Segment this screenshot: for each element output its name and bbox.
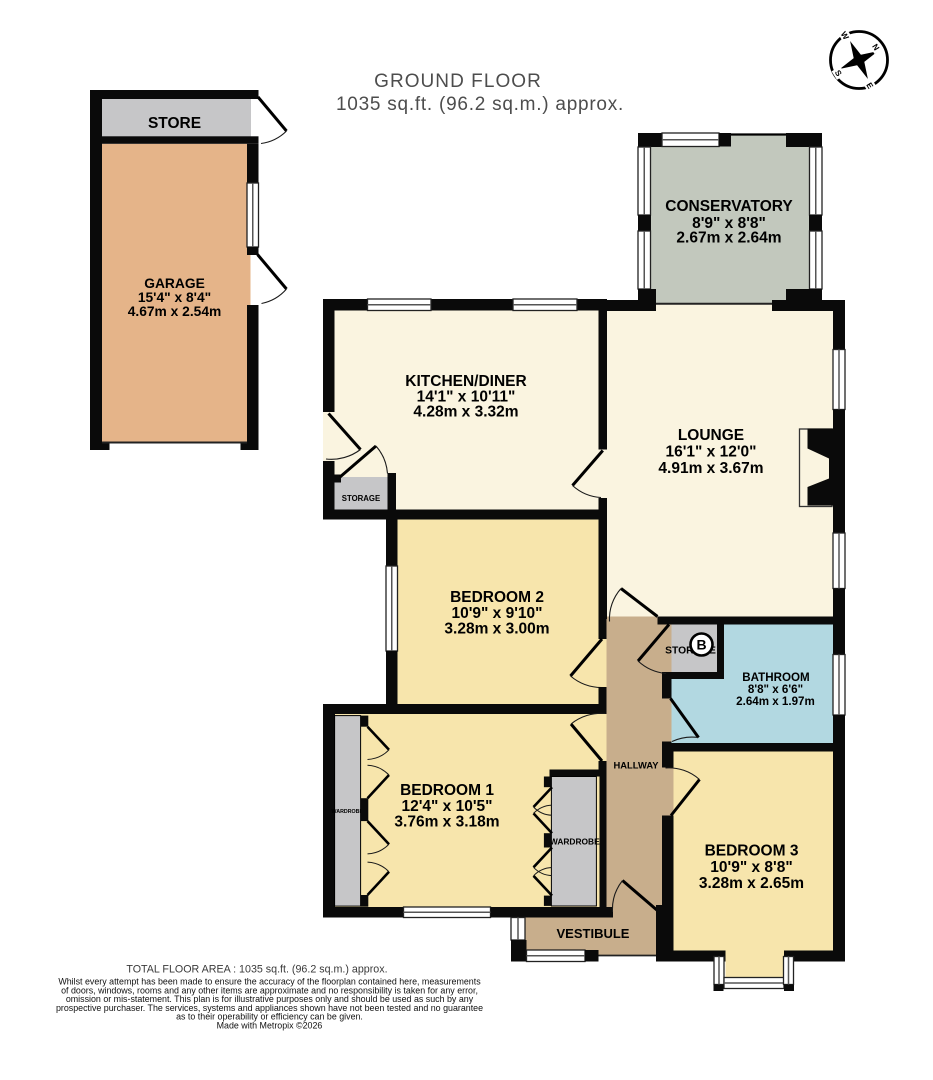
svg-text:TOTAL FLOOR AREA : 1035 sq.ft.: TOTAL FLOOR AREA : 1035 sq.ft. (96.2 sq.… [126,964,387,976]
svg-text:16'1" x 12'0": 16'1" x 12'0" [665,444,756,461]
svg-text:B: B [696,637,706,653]
svg-text:10'9" x 9'10": 10'9" x 9'10" [451,605,542,622]
svg-text:2.67m x 2.64m: 2.67m x 2.64m [676,230,781,247]
svg-text:KITCHEN/DINER: KITCHEN/DINER [405,373,526,390]
svg-text:1035 sq.ft. (96.2 sq.m.) appro: 1035 sq.ft. (96.2 sq.m.) approx. [336,94,624,115]
svg-text:STORE: STORE [148,115,201,132]
svg-text:3.76m x 3.18m: 3.76m x 3.18m [394,814,499,831]
svg-text:BEDROOM 1: BEDROOM 1 [400,782,494,799]
svg-text:WARDROBE: WARDROBE [332,809,364,815]
svg-text:3.28m x 2.65m: 3.28m x 2.65m [699,875,804,892]
svg-text:2.64m x 1.97m: 2.64m x 1.97m [736,695,815,708]
svg-text:GROUND FLOOR: GROUND FLOOR [374,71,542,92]
svg-text:4.28m x 3.32m: 4.28m x 3.32m [413,404,518,421]
svg-text:15'4" x 8'4": 15'4" x 8'4" [138,290,211,305]
svg-text:12'4" x 10'5": 12'4" x 10'5" [401,798,492,815]
svg-text:WARDROBE: WARDROBE [550,837,600,847]
svg-text:4.91m x 3.67m: 4.91m x 3.67m [658,460,763,477]
svg-text:CONSERVATORY: CONSERVATORY [665,198,793,215]
svg-text:BEDROOM 3: BEDROOM 3 [705,843,799,860]
svg-text:BEDROOM 2: BEDROOM 2 [450,589,544,606]
svg-text:3.28m x 3.00m: 3.28m x 3.00m [444,621,549,638]
svg-text:GARAGE: GARAGE [144,276,205,291]
svg-text:4.67m x 2.54m: 4.67m x 2.54m [128,304,222,319]
svg-text:HALLWAY: HALLWAY [614,760,660,771]
svg-text:VESTIBULE: VESTIBULE [557,926,630,941]
svg-text:LOUNGE: LOUNGE [678,427,744,444]
svg-text:Made with Metropix ©2026: Made with Metropix ©2026 [217,1020,323,1030]
svg-text:STORAGE: STORAGE [342,494,380,503]
svg-text:10'9" x 8'8": 10'9" x 8'8" [710,859,792,876]
